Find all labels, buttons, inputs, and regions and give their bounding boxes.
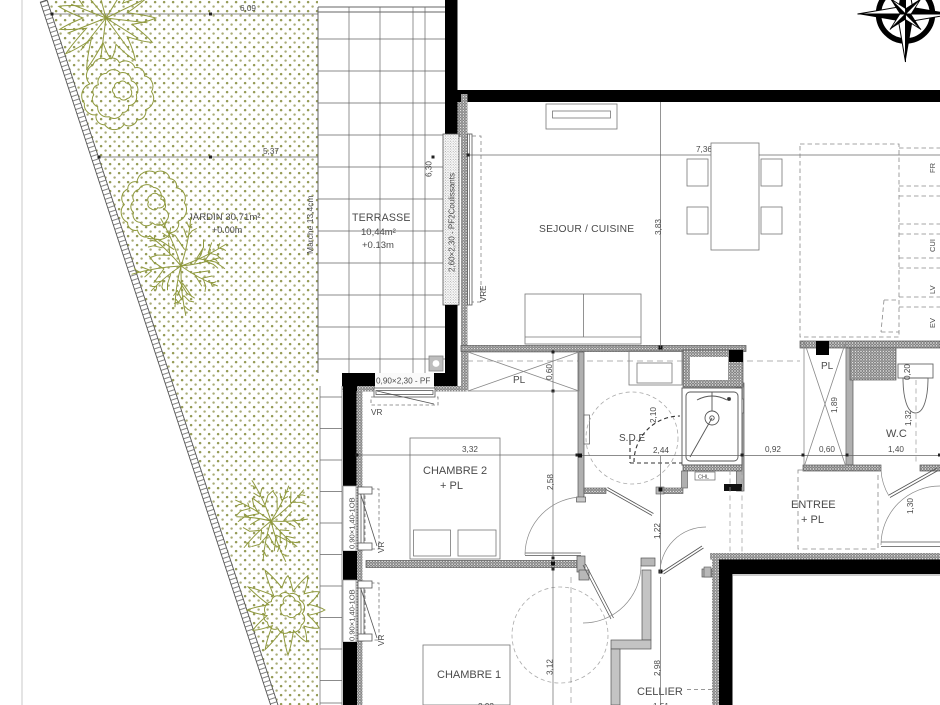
- svg-text:CELLIER: CELLIER: [637, 686, 683, 698]
- svg-text:0,90×1,40-1OB: 0,90×1,40-1OB: [348, 589, 357, 641]
- svg-text:1,22: 1,22: [653, 523, 662, 539]
- svg-text:+0.13m: +0.13m: [362, 240, 394, 251]
- svg-text:2,98: 2,98: [653, 660, 662, 676]
- svg-text:+ PL: + PL: [440, 480, 463, 492]
- svg-text:2,10: 2,10: [649, 407, 658, 423]
- svg-text:VR: VR: [377, 542, 386, 553]
- svg-text:W.C: W.C: [886, 428, 907, 440]
- svg-text:CHL: CHL: [698, 475, 709, 481]
- svg-text:CUI: CUI: [928, 239, 937, 252]
- svg-text:VR: VR: [371, 408, 382, 417]
- svg-text:2,44: 2,44: [653, 446, 669, 455]
- svg-text:FR: FR: [928, 162, 937, 173]
- svg-text:7,36: 7,36: [696, 145, 712, 154]
- svg-text:0,92: 0,92: [765, 445, 781, 454]
- svg-text:0,60: 0,60: [545, 364, 554, 380]
- svg-text:PL: PL: [821, 361, 834, 372]
- svg-text:+ PL: + PL: [801, 514, 824, 526]
- svg-text:LV: LV: [928, 285, 937, 294]
- svg-text:VRE: VRE: [479, 286, 488, 302]
- svg-text:3,32: 3,32: [462, 445, 478, 454]
- svg-text:TERRASSE: TERRASSE: [352, 212, 411, 224]
- svg-text:1,30: 1,30: [906, 498, 915, 514]
- svg-text:3,12: 3,12: [546, 659, 555, 675]
- svg-text:3,83: 3,83: [654, 219, 663, 235]
- svg-text:VR: VR: [377, 635, 386, 646]
- svg-text:5,37: 5,37: [263, 147, 279, 156]
- svg-text:CHAMBRE 1: CHAMBRE 1: [437, 669, 501, 681]
- svg-text:0,20: 0,20: [903, 364, 912, 380]
- svg-text:PL: PL: [513, 375, 526, 386]
- svg-text:JARDIN 30,71m²: JARDIN 30,71m²: [188, 212, 261, 223]
- svg-text:1,89: 1,89: [830, 397, 839, 413]
- svg-text:6,30: 6,30: [425, 161, 434, 177]
- svg-text:SEJOUR / CUISINE: SEJOUR / CUISINE: [539, 224, 634, 235]
- svg-text:0,60: 0,60: [819, 445, 835, 454]
- svg-text:1,32: 1,32: [904, 410, 913, 426]
- svg-text:+0.00m: +0.00m: [212, 225, 242, 235]
- svg-text:0,90×1,40-1OB: 0,90×1,40-1OB: [348, 497, 357, 549]
- svg-text:0,90×2,30 - PF: 0,90×2,30 - PF: [376, 377, 430, 386]
- svg-text:EV: EV: [928, 318, 937, 328]
- svg-text:S.D.E: S.D.E: [619, 433, 645, 444]
- svg-text:2,60×2,30 - PF2Coulissants: 2,60×2,30 - PF2Coulissants: [448, 173, 457, 272]
- svg-text:CHAMBRE 2: CHAMBRE 2: [423, 465, 487, 477]
- svg-text:1,40: 1,40: [888, 445, 904, 454]
- svg-text:Marche 13,4cm: Marche 13,4cm: [305, 195, 315, 254]
- svg-text:10,44m²: 10,44m²: [361, 227, 396, 238]
- svg-text:2,58: 2,58: [546, 474, 555, 490]
- svg-text:6,09: 6,09: [240, 4, 256, 13]
- svg-text:ENTREE: ENTREE: [791, 499, 836, 511]
